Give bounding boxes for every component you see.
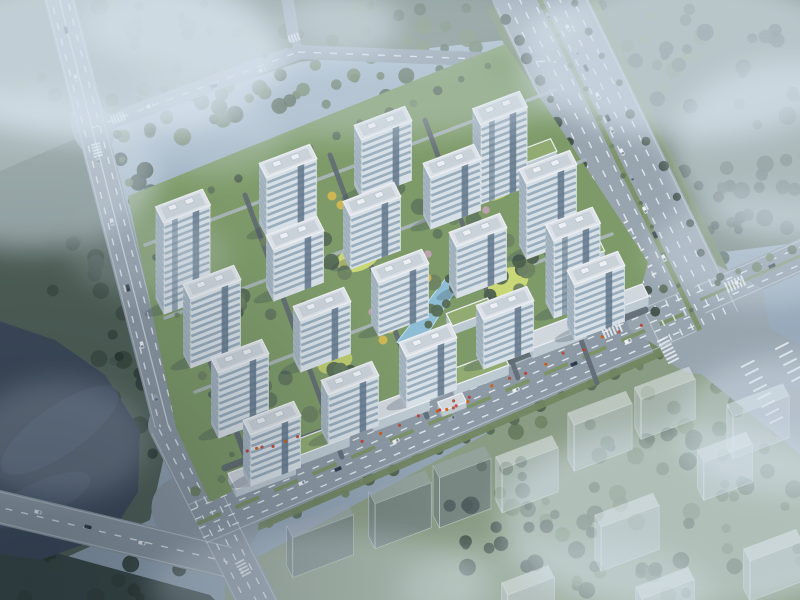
color-grade-overlay bbox=[0, 0, 800, 600]
render-scene bbox=[0, 0, 800, 600]
aerial-render-image bbox=[0, 0, 800, 600]
